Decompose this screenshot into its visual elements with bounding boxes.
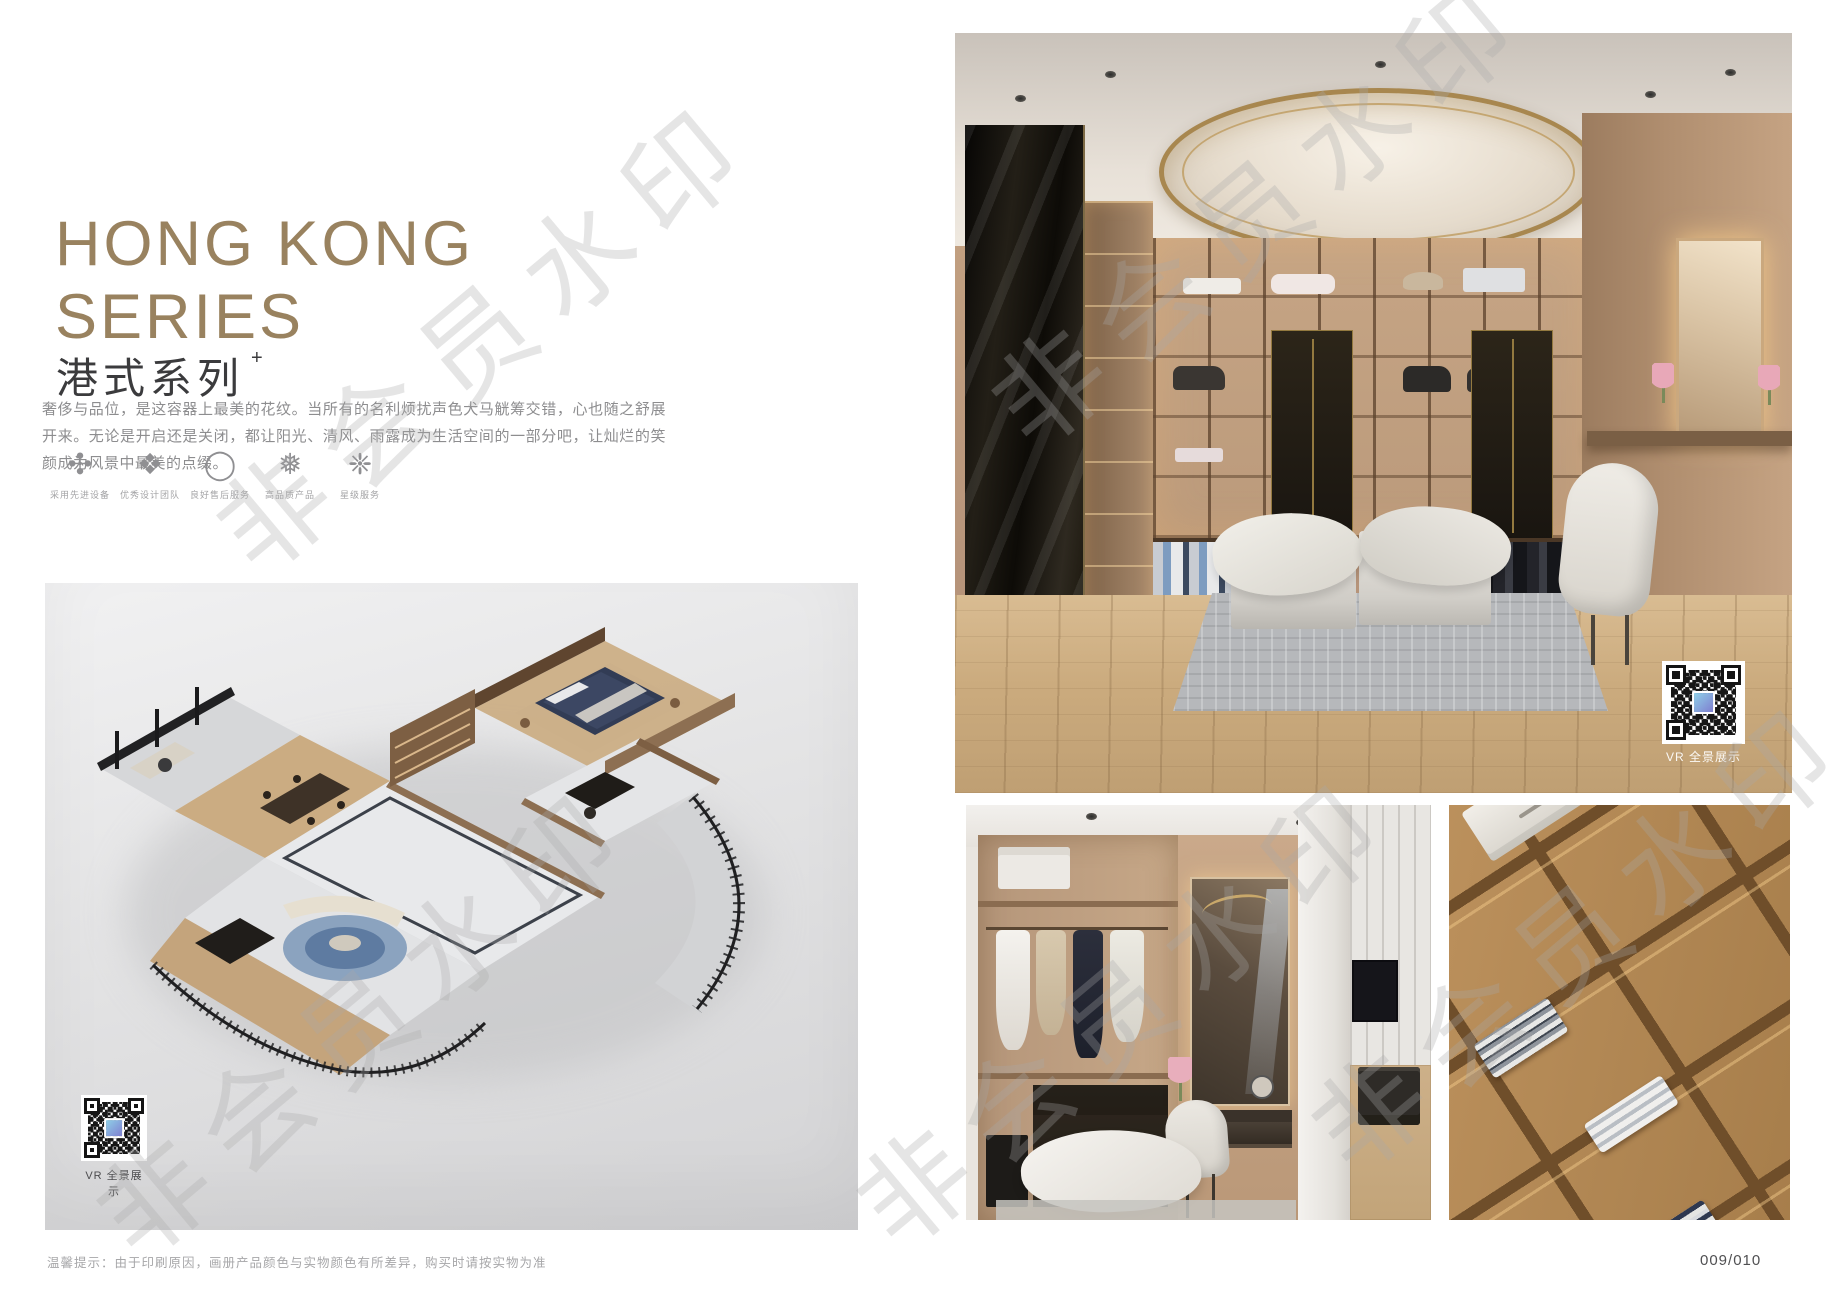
center-ottoman <box>1231 521 1493 633</box>
series-title-line1: HONG KONG <box>55 208 474 281</box>
wardrobe-shelf <box>978 901 1178 907</box>
folded-clothes-stack <box>1473 998 1569 1079</box>
floorplan-illustration <box>45 583 858 1230</box>
floorplan-panel: VR 全景展示 <box>45 583 858 1230</box>
chair-legs <box>1581 615 1639 665</box>
ceiling-dome-gold-ring <box>1159 88 1598 256</box>
qr-finder <box>128 1098 144 1114</box>
hanging-garment <box>1110 930 1144 1042</box>
hanging-garment <box>1036 930 1066 1035</box>
spotlight-icon <box>1725 69 1736 76</box>
snowflake-icon: ❅ <box>260 447 320 483</box>
drawer-handle <box>1518 805 1545 819</box>
vr-label: VR 全景展示 <box>81 1167 147 1199</box>
spotlight-icon <box>1015 95 1026 102</box>
qr-finder <box>1666 665 1686 685</box>
catalog-page: HONG KONG SERIES 港式系列+ 奢侈与品位，是这容器上最美的花纹。… <box>0 0 1836 1307</box>
white-column <box>1298 805 1350 1220</box>
series-title-line2: SERIES <box>55 281 474 354</box>
dark-cabinet <box>1471 330 1553 542</box>
ring-icon: ◯ <box>190 447 250 483</box>
back-shelving-wall <box>1153 238 1593 538</box>
qr-cube-logo-icon <box>1692 691 1716 715</box>
vr-qr-code <box>81 1095 147 1161</box>
page-number: 009/010 <box>1700 1252 1761 1269</box>
feature-design-team: ❖ 优秀设计团队 <box>120 447 180 501</box>
dressing-mirror <box>1190 877 1290 1106</box>
hallway-view <box>1350 805 1431 1220</box>
feature-label: 优秀设计团队 <box>120 488 180 501</box>
wardrobe-shelf <box>978 1073 1178 1079</box>
photo-shelf-closeup <box>1449 805 1790 1220</box>
pink-flowers <box>1652 363 1674 403</box>
qr-cube-logo-icon <box>104 1118 124 1138</box>
main-photo-vr-block: VR 全景展示 <box>1662 661 1745 765</box>
shelf-item <box>1175 448 1223 462</box>
shelf-item <box>1183 278 1241 294</box>
shelf-item <box>1173 366 1225 390</box>
folded-clothes-stack <box>1583 1075 1679 1154</box>
spotlight-icon <box>1645 91 1656 98</box>
folded-clothes-stack <box>1621 1200 1722 1220</box>
hanging-garment <box>996 930 1030 1050</box>
shelf-item <box>1271 274 1335 294</box>
pink-flowers <box>1168 1057 1192 1101</box>
vanity-counter <box>1587 431 1792 446</box>
table-mirror <box>1250 1075 1274 1099</box>
shelf-item <box>1403 366 1451 392</box>
diamond-ornament-icon: ❖ <box>120 447 180 483</box>
white-chair <box>1553 463 1671 665</box>
chair-back <box>1555 459 1662 620</box>
subtitle-plus-mark: + <box>251 347 268 369</box>
series-title: HONG KONG SERIES <box>55 208 474 354</box>
feature-label: 星级服务 <box>330 488 390 501</box>
photo-dressing-area <box>966 805 1431 1220</box>
qr-finder <box>84 1098 100 1114</box>
feature-label: 良好售后服务 <box>190 488 250 501</box>
star-ornament-icon: ❈ <box>330 447 390 483</box>
feature-icon-row: ✣ 采用先进设备 ❖ 优秀设计团队 ◯ 良好售后服务 ❅ 高品质产品 ❈ 星级服… <box>50 447 390 501</box>
vr-label: VR 全景展示 <box>1662 748 1745 765</box>
dome-reflection <box>1200 890 1273 928</box>
feature-label: 采用先进设备 <box>50 488 110 501</box>
qr-finder <box>1666 720 1686 740</box>
spotlight-icon <box>1375 61 1386 68</box>
dark-console <box>1358 1067 1420 1125</box>
white-drawer-box <box>1461 805 1595 862</box>
paneled-wall <box>1350 805 1431 1065</box>
storage-box <box>998 847 1070 889</box>
feature-label: 高品质产品 <box>260 488 320 501</box>
spotlight-icon <box>1086 813 1097 820</box>
vr-qr-code <box>1662 661 1745 744</box>
main-photo-walk-in-closet: VR 全景展示 <box>955 33 1792 793</box>
hanging-garment <box>1073 930 1103 1058</box>
dark-cabinet <box>1271 330 1353 542</box>
feature-star-service: ❈ 星级服务 <box>330 447 390 501</box>
left-shelving <box>1085 201 1153 631</box>
vanity-mirror <box>1676 238 1764 439</box>
shelf-item <box>1463 268 1525 292</box>
feature-advanced-equipment: ✣ 采用先进设备 <box>50 447 110 501</box>
wall-tv <box>1352 960 1398 1022</box>
light-rug <box>996 1200 1296 1220</box>
qr-finder <box>84 1142 100 1158</box>
feature-after-sales: ◯ 良好售后服务 <box>190 447 250 501</box>
floorplan-vr-block: VR 全景展示 <box>81 1095 147 1199</box>
qr-finder <box>1721 665 1741 685</box>
footer-note: 温馨提示：由于印刷原因，画册产品颜色与实物颜色有所差异，购买时请按实物为准 <box>47 1252 547 1271</box>
feature-quality-product: ❅ 高品质产品 <box>260 447 320 501</box>
shelf-item <box>1403 272 1443 290</box>
pinwheel-icon: ✣ <box>50 447 110 483</box>
spotlight-icon <box>1105 71 1116 78</box>
angled-shelving-grid <box>1449 805 1790 1220</box>
pink-flowers <box>1758 365 1780 405</box>
